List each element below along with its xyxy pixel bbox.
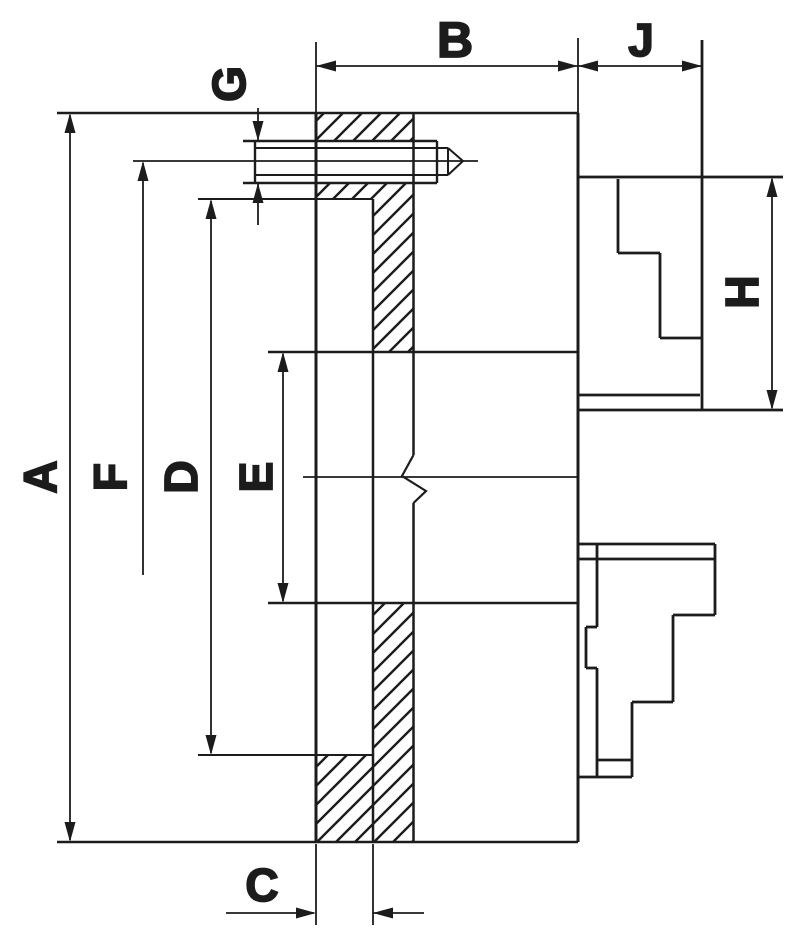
dim-c-label: C xyxy=(245,859,278,911)
dim-a-label: A xyxy=(14,460,66,493)
dim-g-arrow-up xyxy=(253,183,264,203)
dim-j-arrow-left xyxy=(578,61,598,72)
dim-d-label: D xyxy=(155,460,207,493)
dim-h-arrow-top xyxy=(767,177,778,197)
dim-c-arrow-left-in xyxy=(373,908,393,919)
dimension-e: E xyxy=(230,352,289,603)
dimension-c: C xyxy=(226,844,424,925)
dim-b-label: B xyxy=(437,12,473,68)
dim-j-arrow-right xyxy=(682,61,702,72)
dim-e-arrow-bottom xyxy=(278,583,289,603)
dim-b-arrow-left xyxy=(316,61,336,72)
break-line-zigzag xyxy=(402,455,426,503)
dim-c-arrow-right-in xyxy=(296,908,316,919)
dim-e-label: E xyxy=(230,462,282,493)
top-jaw xyxy=(578,40,783,410)
dim-a-arrow-bottom xyxy=(65,822,76,842)
hatch-below-bolt xyxy=(316,183,414,199)
dimension-h: H xyxy=(716,177,778,410)
dimension-b: B xyxy=(316,12,578,113)
dim-j-label: J xyxy=(628,14,654,66)
dimension-f: F xyxy=(84,161,149,575)
hatch-lower-wall xyxy=(373,603,414,755)
chuck-section-drawing: A F D E G B J xyxy=(0,0,800,948)
technical-drawing-page: A F D E G B J xyxy=(0,0,800,948)
dimension-a: A xyxy=(14,113,76,842)
dimension-d: D xyxy=(155,199,217,755)
dim-e-arrow-top xyxy=(278,352,289,372)
mounting-bolt xyxy=(133,141,478,183)
dim-b-arrow-right xyxy=(558,61,578,72)
dim-f-label: F xyxy=(84,463,136,491)
dim-h-arrow-bottom xyxy=(767,390,778,410)
dim-g-label: G xyxy=(203,66,255,102)
dim-f-arrow-top xyxy=(138,161,149,181)
dimension-j: J xyxy=(578,14,702,72)
hatch-bottom-flange xyxy=(316,755,414,842)
hatch-top-flange xyxy=(316,113,414,141)
bottom-jaw xyxy=(578,544,715,777)
dim-g-arrow-down xyxy=(253,121,264,141)
dim-a-arrow-top xyxy=(65,113,76,133)
dim-d-arrow-top xyxy=(206,199,217,219)
hatch-upper-wall xyxy=(373,199,414,352)
dim-d-arrow-bottom xyxy=(206,735,217,755)
dim-h-label: H xyxy=(716,275,768,308)
